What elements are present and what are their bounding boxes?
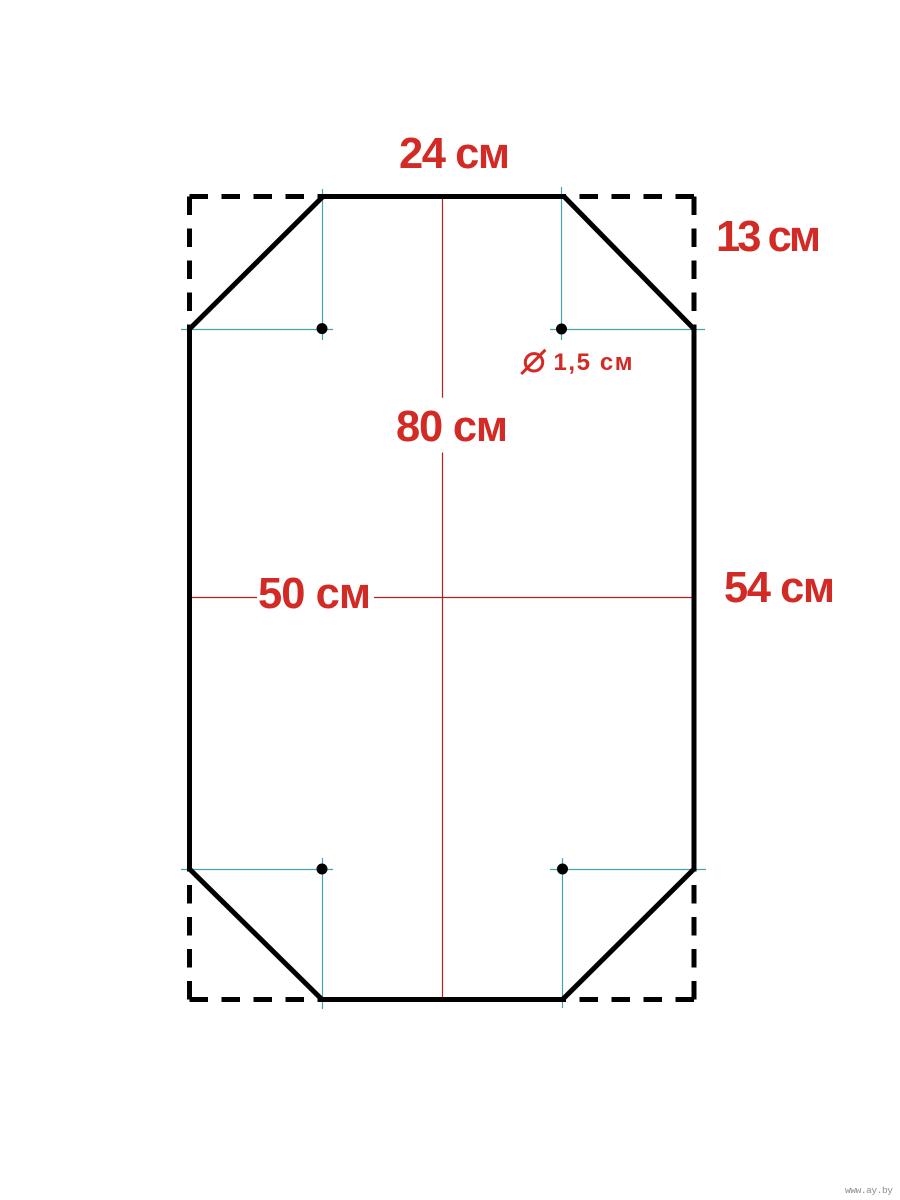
svg-text:50 см: 50 см bbox=[258, 570, 371, 618]
svg-text:www.ay.by: www.ay.by bbox=[845, 1185, 893, 1196]
svg-text:13 см: 13 см bbox=[716, 213, 821, 261]
svg-text:80 см: 80 см bbox=[396, 403, 508, 451]
svg-text:24 см: 24 см bbox=[399, 130, 510, 178]
svg-text:54 см: 54 см bbox=[724, 564, 835, 612]
svg-text:1,5 см: 1,5 см bbox=[554, 349, 633, 376]
